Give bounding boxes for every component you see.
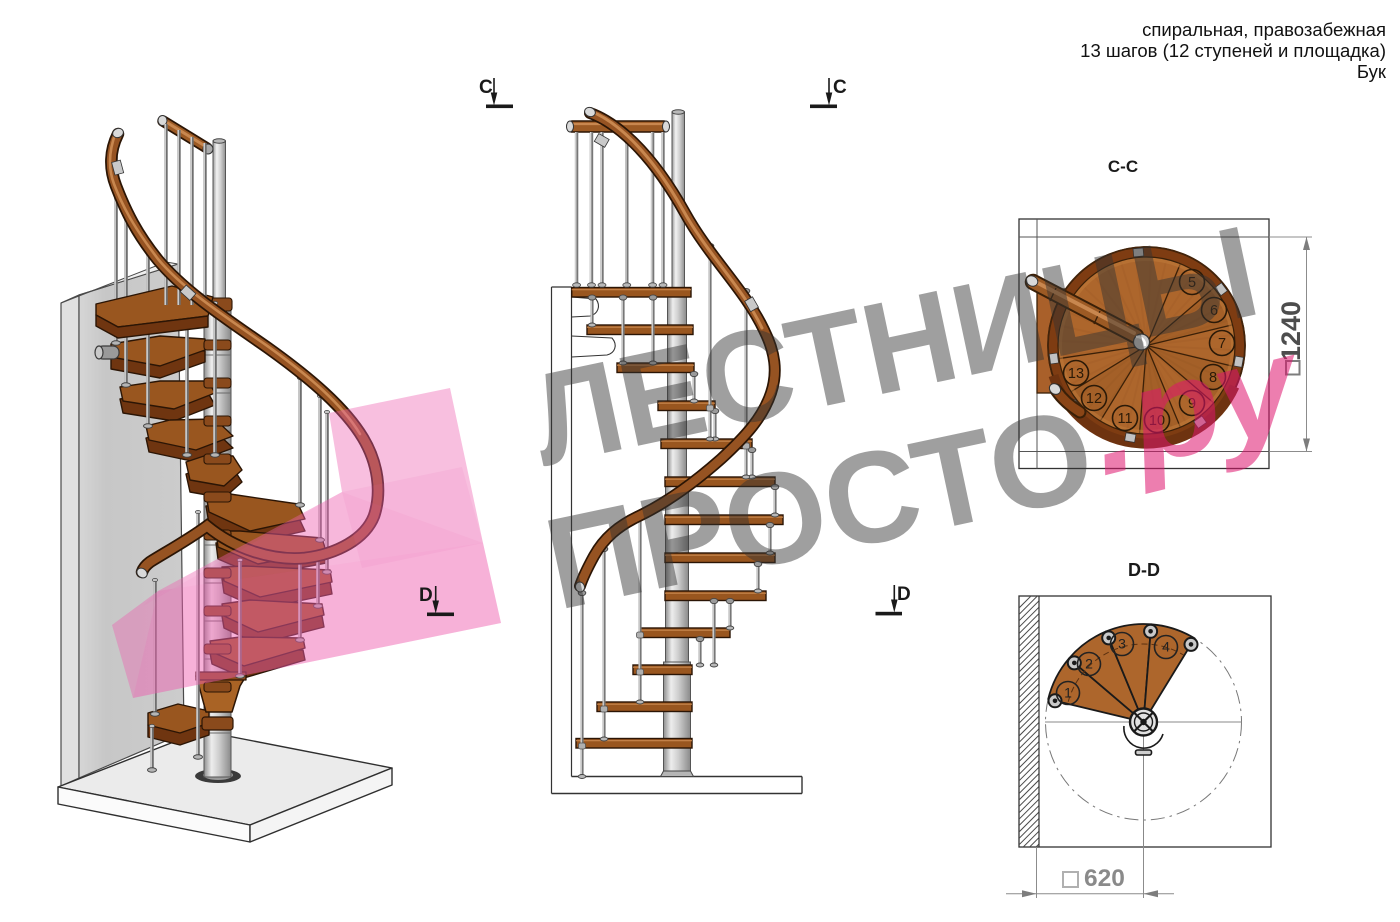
svg-text:C: C: [833, 77, 847, 98]
svg-text:2: 2: [1085, 656, 1093, 672]
svg-text:D-D: D-D: [1128, 560, 1160, 580]
svg-text:С-С: С-С: [1108, 157, 1138, 176]
svg-text:D: D: [419, 585, 433, 606]
svg-text:620: 620: [1084, 865, 1125, 892]
svg-text:D: D: [897, 584, 911, 605]
svg-text:3: 3: [1118, 636, 1126, 652]
svg-text:C: C: [479, 77, 493, 98]
svg-text:1: 1: [1064, 685, 1072, 701]
svg-text:4: 4: [1162, 639, 1170, 655]
